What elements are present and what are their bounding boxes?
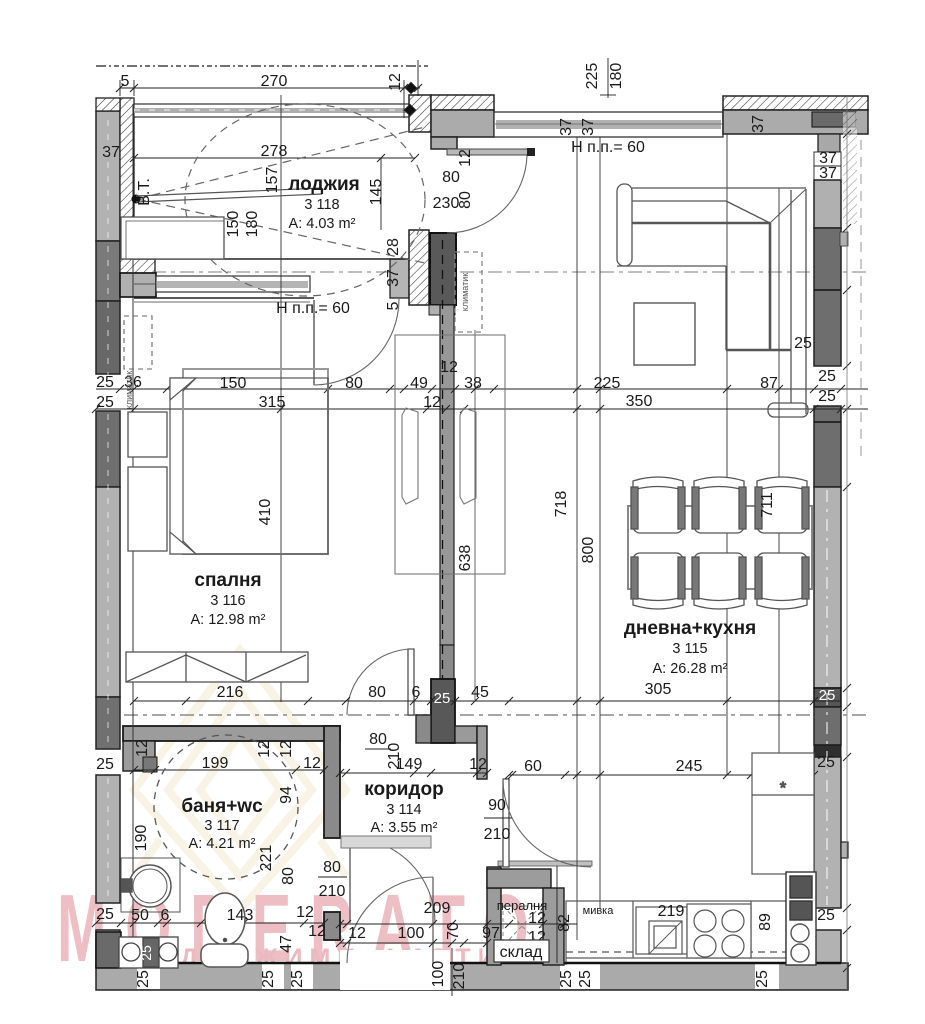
svg-text:12: 12 (440, 359, 458, 376)
svg-text:278: 278 (261, 143, 288, 160)
svg-text:45: 45 (471, 684, 489, 701)
svg-text:12: 12 (423, 394, 441, 411)
svg-text:225: 225 (584, 63, 601, 90)
svg-text:210: 210 (484, 826, 511, 843)
svg-text:*: * (780, 780, 786, 797)
svg-text:94: 94 (278, 786, 295, 804)
svg-text:3 115: 3 115 (672, 641, 707, 657)
svg-text:25: 25 (135, 970, 152, 988)
svg-text:100: 100 (430, 961, 447, 988)
svg-text:12: 12 (278, 740, 295, 758)
svg-text:25: 25 (817, 907, 835, 924)
svg-text:210: 210 (386, 743, 403, 770)
svg-text:157: 157 (264, 167, 281, 194)
svg-text:12: 12 (457, 149, 474, 167)
svg-text:A: 4.03 m²: A: 4.03 m² (289, 216, 356, 232)
svg-text:718: 718 (553, 491, 570, 518)
svg-text:25: 25 (96, 906, 114, 923)
svg-text:A: 3.55 m²: A: 3.55 m² (371, 820, 438, 836)
svg-text:50: 50 (131, 907, 149, 924)
svg-text:219: 219 (658, 903, 685, 920)
svg-text:80: 80 (368, 684, 386, 701)
svg-text:12: 12 (348, 925, 366, 942)
svg-text:баня+wc: баня+wc (181, 796, 263, 817)
svg-text:12: 12 (528, 910, 546, 927)
svg-text:60: 60 (524, 758, 542, 775)
svg-text:210: 210 (319, 883, 346, 900)
svg-text:49: 49 (410, 375, 428, 392)
svg-text:климатик: климатик (124, 371, 134, 409)
svg-text:82: 82 (556, 914, 573, 932)
svg-text:90: 90 (488, 797, 506, 814)
svg-text:​спалня: ​спалня (194, 570, 261, 591)
svg-text:87: 87 (760, 375, 778, 392)
svg-text:80: 80 (345, 375, 363, 392)
svg-text:склад: склад (500, 944, 543, 961)
svg-text:216: 216 (217, 684, 244, 701)
svg-text:лоджия: лоджия (288, 174, 359, 195)
svg-text:209: 209 (424, 900, 451, 917)
svg-text:25: 25 (434, 690, 451, 707)
svg-text:143: 143 (227, 907, 254, 924)
svg-text:711: 711 (759, 492, 776, 518)
svg-text:80: 80 (323, 859, 341, 876)
svg-text:A: 12.98 m²: A: 12.98 m² (191, 612, 266, 628)
svg-text:25: 25 (96, 756, 114, 773)
svg-text:37: 37 (750, 115, 767, 133)
svg-text:28: 28 (385, 238, 402, 256)
svg-text:150: 150 (225, 211, 242, 238)
svg-text:80: 80 (442, 169, 460, 186)
svg-text:350: 350 (626, 393, 653, 410)
svg-text:145: 145 (368, 179, 385, 206)
svg-text:5: 5 (121, 73, 130, 90)
svg-text:25: 25 (794, 335, 812, 352)
svg-text:315: 315 (259, 394, 286, 411)
svg-text:221: 221 (258, 845, 275, 872)
svg-text:6: 6 (161, 907, 170, 924)
svg-text:37: 37 (385, 269, 402, 287)
svg-text:25: 25 (260, 970, 277, 988)
svg-text:12: 12 (469, 756, 487, 773)
svg-text:12: 12 (303, 755, 321, 772)
svg-text:25: 25 (577, 970, 594, 988)
svg-text:80: 80 (280, 867, 297, 885)
svg-text:150: 150 (220, 375, 247, 392)
svg-text:37: 37 (819, 165, 837, 182)
svg-text:70: 70 (445, 922, 462, 940)
svg-text:270: 270 (261, 73, 288, 90)
svg-text:25: 25 (289, 970, 306, 988)
svg-text:410: 410 (257, 499, 274, 526)
svg-text:37: 37 (558, 118, 575, 136)
svg-text:3 114: 3 114 (386, 802, 421, 818)
svg-text:12: 12 (134, 739, 151, 757)
svg-text:Н п.п.= 60: Н п.п.= 60 (571, 139, 645, 156)
svg-text:12: 12 (256, 740, 273, 758)
svg-text:дневна+кухня: дневна+кухня (624, 618, 756, 639)
svg-text:12: 12 (296, 904, 314, 921)
svg-text:25: 25 (754, 970, 771, 988)
svg-text:37: 37 (580, 118, 597, 136)
svg-text:245: 245 (676, 758, 703, 775)
svg-text:305: 305 (645, 681, 672, 698)
svg-text:25: 25 (96, 374, 114, 391)
svg-text:12: 12 (387, 73, 404, 91)
svg-text:100: 100 (398, 925, 425, 942)
svg-text:80: 80 (457, 191, 474, 209)
svg-text:5: 5 (385, 301, 402, 310)
svg-text:180: 180 (608, 63, 625, 90)
svg-text:800: 800 (580, 537, 597, 564)
svg-text:210: 210 (451, 963, 468, 990)
svg-text:коридор: коридор (364, 779, 443, 800)
svg-text:климатик: климатик (460, 273, 470, 311)
svg-text:25: 25 (138, 945, 154, 961)
svg-text:89: 89 (757, 913, 774, 931)
svg-text:мивка: мивка (583, 905, 615, 917)
svg-text:230: 230 (433, 195, 460, 212)
svg-text:25: 25 (96, 394, 114, 411)
svg-text:38: 38 (464, 375, 482, 392)
svg-text:3 117: 3 117 (204, 818, 239, 834)
svg-text:47: 47 (278, 935, 295, 953)
svg-text:3 118: 3 118 (304, 197, 339, 213)
svg-text:190: 190 (133, 825, 150, 852)
svg-text:199: 199 (202, 755, 229, 772)
svg-text:25: 25 (558, 970, 575, 988)
svg-text:25: 25 (817, 754, 835, 771)
svg-text:Н п.п.= 60: Н п.п.= 60 (276, 300, 350, 317)
svg-text:В.Т.: В.Т. (136, 178, 153, 206)
svg-text:180: 180 (244, 211, 261, 238)
svg-text:80: 80 (369, 731, 387, 748)
svg-text:A: 4.21 m²: A: 4.21 m² (189, 836, 256, 852)
svg-text:25: 25 (818, 368, 836, 385)
svg-text:25: 25 (819, 687, 836, 704)
svg-text:225: 225 (594, 375, 621, 392)
svg-text:A: 26.28 m²: A: 26.28 m² (653, 661, 728, 677)
svg-text:37: 37 (102, 144, 120, 161)
svg-text:12: 12 (308, 923, 326, 940)
svg-text:3 116: 3 116 (210, 593, 245, 609)
svg-text:25: 25 (818, 388, 836, 405)
svg-text:6: 6 (412, 684, 421, 701)
svg-text:638: 638 (457, 545, 474, 572)
